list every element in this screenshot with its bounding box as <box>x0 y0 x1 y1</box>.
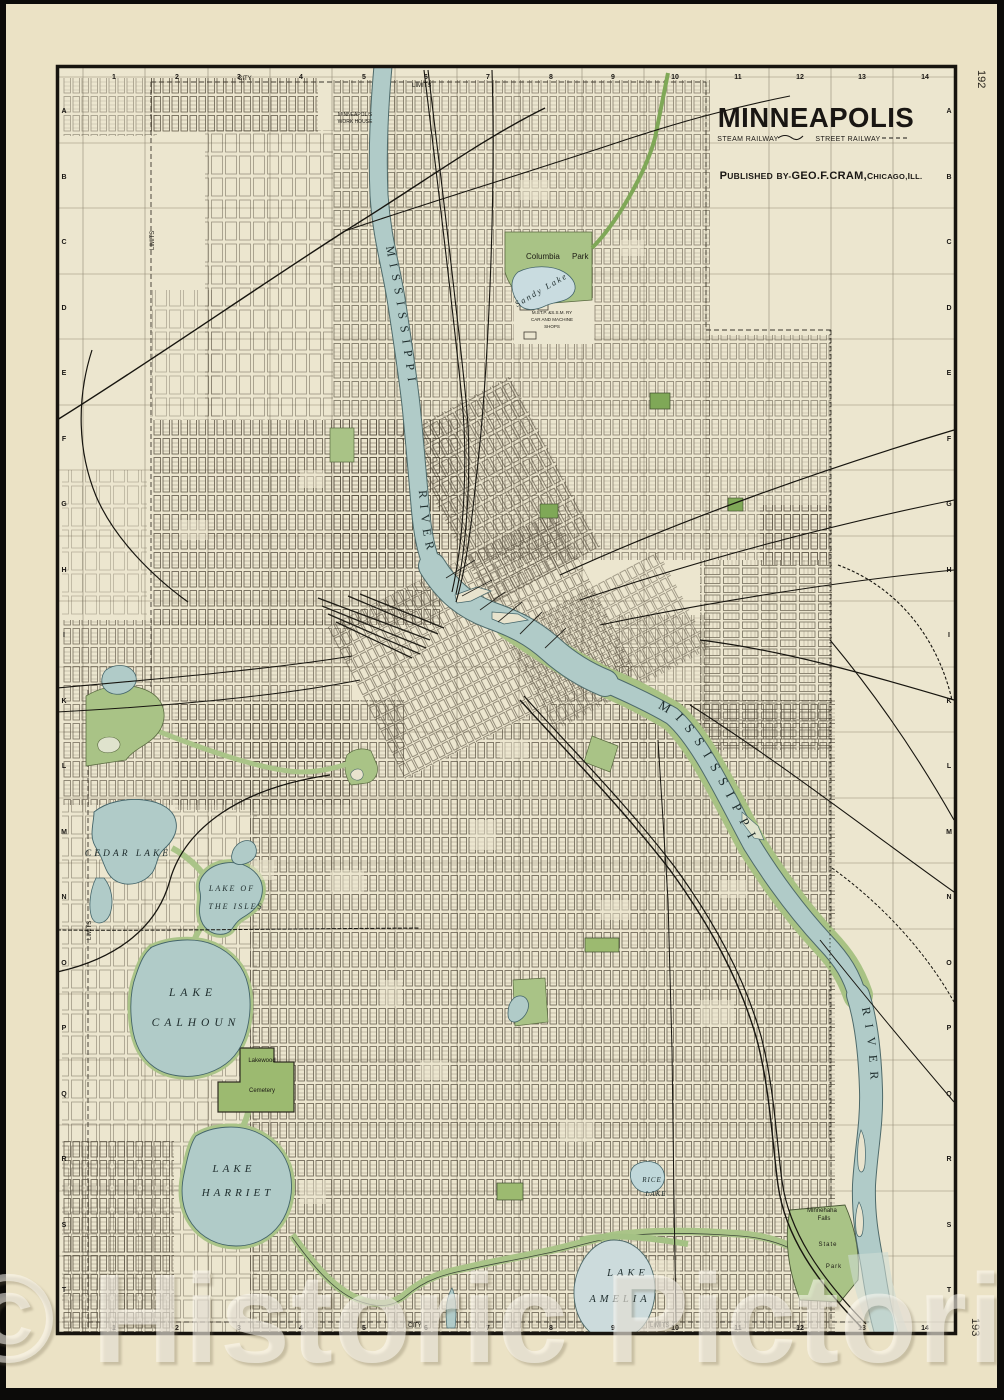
svg-text:LAKE: LAKE <box>212 1163 256 1175</box>
svg-text:HARRIET: HARRIET <box>201 1187 275 1199</box>
svg-text:K: K <box>61 698 66 705</box>
svg-text:LAKE OF: LAKE OF <box>208 884 255 893</box>
svg-text:B: B <box>61 174 66 181</box>
svg-text:D: D <box>61 305 66 312</box>
svg-text:M.ST.P. &S.S.M. RY: M.ST.P. &S.S.M. RY <box>532 310 572 315</box>
svg-text:11: 11 <box>734 74 742 81</box>
svg-text:H: H <box>946 567 951 574</box>
svg-text:10: 10 <box>671 74 679 81</box>
svg-text:I: I <box>948 632 950 639</box>
svg-text:7: 7 <box>486 74 490 81</box>
svg-text:8: 8 <box>549 74 553 81</box>
svg-text:Q: Q <box>946 1091 952 1098</box>
svg-text:A: A <box>946 108 951 115</box>
svg-text:LAKE: LAKE <box>644 1190 666 1198</box>
svg-text:Minnehaha: Minnehaha <box>807 1208 837 1214</box>
svg-text:RICE: RICE <box>641 1176 662 1184</box>
svg-text:LIMITS: LIMITS <box>87 921 93 940</box>
svg-text:LIMITS: LIMITS <box>150 231 156 250</box>
svg-text:THE ISLES: THE ISLES <box>208 902 263 911</box>
svg-text:192: 192 <box>975 70 987 88</box>
svg-text:STREET RAILWAY: STREET RAILWAY <box>815 136 880 143</box>
svg-text:G: G <box>946 501 952 508</box>
svg-text:I: I <box>63 632 65 639</box>
svg-text:WORK HOUSE: WORK HOUSE <box>338 119 373 125</box>
svg-text:6: 6 <box>424 74 428 81</box>
svg-text:S: S <box>62 1222 67 1229</box>
svg-text:O: O <box>946 960 952 967</box>
svg-text:Lakewood: Lakewood <box>248 1058 275 1064</box>
svg-text:Falls: Falls <box>818 1216 831 1222</box>
svg-text:12: 12 <box>796 74 804 81</box>
svg-text:4: 4 <box>299 74 303 81</box>
svg-text:S: S <box>947 1222 952 1229</box>
svg-text:M: M <box>61 829 67 836</box>
svg-text:MINNEAPOLIS: MINNEAPOLIS <box>338 112 373 118</box>
svg-text:C: C <box>61 239 66 246</box>
svg-text:5: 5 <box>362 74 366 81</box>
svg-text:R: R <box>61 1156 66 1163</box>
svg-text:F: F <box>62 436 67 443</box>
svg-text:L: L <box>62 763 67 770</box>
svg-text:CALHOUN: CALHOUN <box>152 1017 241 1029</box>
svg-text:Columbia: Columbia <box>526 252 560 261</box>
svg-text:D: D <box>946 305 951 312</box>
svg-text:9: 9 <box>611 74 615 81</box>
svg-text:Park: Park <box>572 252 589 261</box>
svg-text:P: P <box>62 1025 67 1032</box>
svg-text:L: L <box>947 763 952 770</box>
svg-text:R: R <box>946 1156 951 1163</box>
svg-text:G: G <box>61 501 67 508</box>
svg-text:E: E <box>947 370 952 377</box>
svg-text:LAKE: LAKE <box>168 987 217 999</box>
svg-text:MINNEAPOLIS: MINNEAPOLIS <box>718 102 914 133</box>
svg-text:PUBLISHED BY-GEO.F.CRAM,CHICAG: PUBLISHED BY-GEO.F.CRAM,CHICAGO,ILL. <box>720 170 923 182</box>
svg-text:LIMITS: LIMITS <box>412 83 431 89</box>
svg-text:A: A <box>61 108 66 115</box>
svg-text:N: N <box>61 894 66 901</box>
svg-text:Cemetery: Cemetery <box>249 1088 275 1094</box>
svg-text:13: 13 <box>858 74 866 81</box>
svg-text:O: O <box>61 960 67 967</box>
svg-text:1: 1 <box>112 74 116 81</box>
svg-text:SHOPS: SHOPS <box>544 324 560 329</box>
svg-text:CAR AND MACHINE: CAR AND MACHINE <box>531 317 573 322</box>
svg-text:2: 2 <box>175 74 179 81</box>
svg-text:STEAM RAILWAY: STEAM RAILWAY <box>717 136 778 143</box>
svg-text:CITY: CITY <box>238 76 252 82</box>
svg-text:F: F <box>947 436 952 443</box>
svg-text:N: N <box>946 894 951 901</box>
svg-text:M: M <box>946 829 952 836</box>
svg-text:Q: Q <box>61 1091 67 1098</box>
svg-text:H: H <box>61 567 66 574</box>
svg-text:CEDAR LAKE: CEDAR LAKE <box>85 849 171 859</box>
svg-text:14: 14 <box>921 74 929 81</box>
svg-text:K: K <box>946 698 951 705</box>
svg-text:B: B <box>946 174 951 181</box>
svg-text:C: C <box>946 239 951 246</box>
svg-text:P: P <box>947 1025 952 1032</box>
svg-text:E: E <box>62 370 67 377</box>
